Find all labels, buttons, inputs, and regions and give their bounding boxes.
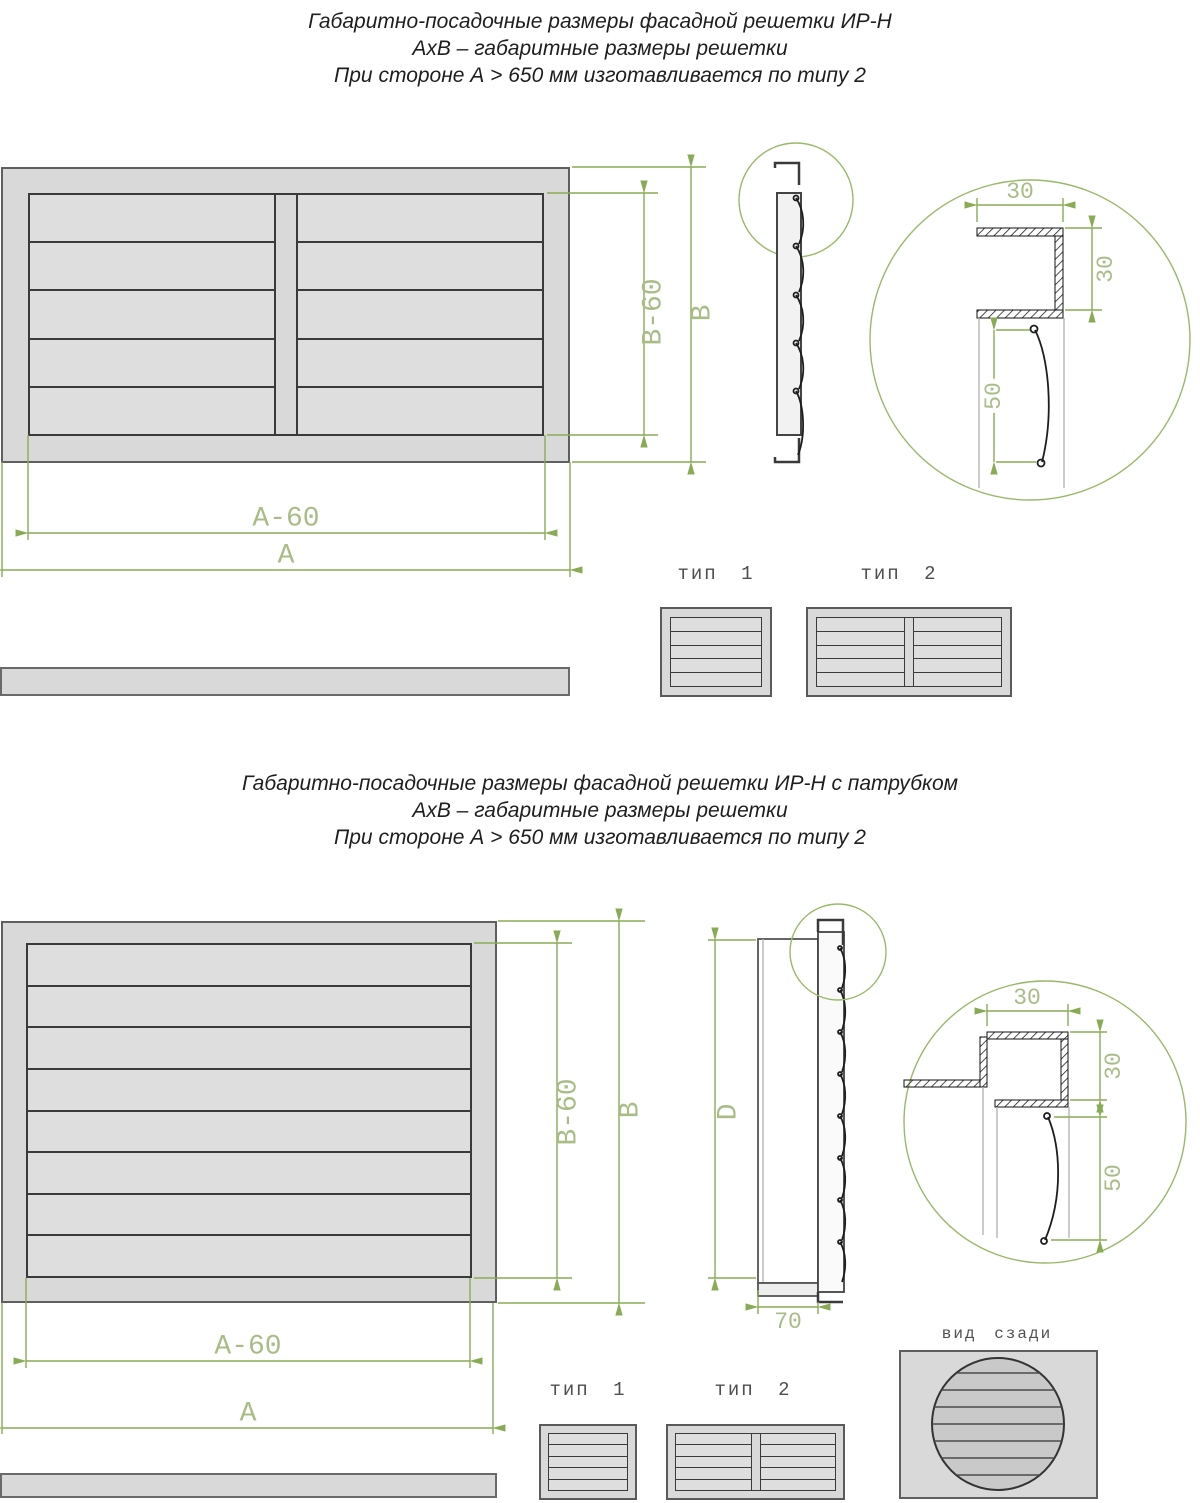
louver-slat [817,645,904,659]
louver-slat [671,658,761,672]
dim-label-b60: B-60 [639,278,670,345]
louver-slat [549,1456,627,1467]
louver-slat [817,672,904,686]
louver-slat [914,618,1001,631]
profile-flange-top [977,228,1063,236]
section2-detail-view [902,980,1192,1270]
rear-view-opening [901,1352,1096,1497]
section1-profile-strip [0,667,570,696]
dim-label-a60: A-60 [214,1332,281,1363]
detail-dim-height: 30 [1101,1052,1127,1080]
louver-slat [817,631,904,645]
louver-slat [676,1444,751,1455]
rear-view-label: вид сзади [942,1325,1052,1343]
louver-slat [549,1434,627,1444]
profile-flange-top [987,1032,1068,1039]
louver-slat [676,1479,751,1490]
profile-flange-bottom [977,310,1063,318]
detail-dim-height: 30 [1093,255,1119,283]
detail-dim-blade: 50 [981,379,1007,413]
center-divider [751,1434,761,1490]
type1-label: тип 1 [677,563,754,585]
section2-dimension-lines [0,915,720,1435]
rear-view-box [899,1350,1098,1499]
louver-slat [671,672,761,686]
detail-dim-width: 30 [1006,179,1034,205]
section2-title-line3: При стороне А > 650 мм изготавливается п… [0,824,1200,851]
louver-slat [671,631,761,645]
louver-slat [914,645,1001,659]
louver-slat [817,618,904,631]
detail-dim-blade: 50 [1101,1164,1127,1192]
dim-label-d: D [714,1104,745,1121]
type1-grille-thumbnail [660,607,772,697]
section2-profile-strip [0,1473,497,1498]
louver-slat [761,1434,836,1444]
section1-title-line2: АхВ – габаритные размеры решетки [0,35,1200,62]
dim-label-b: B [616,1102,647,1119]
louver-slat [761,1456,836,1467]
dim-label-a: A [278,541,295,572]
louver-slat [914,672,1001,686]
section1-side-view [730,140,870,480]
louver-slat [817,658,904,672]
louver-slat [549,1479,627,1490]
grille-profile [818,932,844,1292]
section1-title: Габаритно-посадочные размеры фасадной ре… [0,8,1200,89]
louver-slat [671,645,761,659]
type1-grille-thumbnail [539,1424,637,1500]
louver-slat [676,1456,751,1467]
section1-detail-view [862,172,1200,512]
louver-slat [761,1444,836,1455]
section1-dimension-lines [0,160,720,590]
center-divider [904,618,914,686]
dim-label-depth: 70 [774,1309,802,1335]
dim-label-b60: B-60 [554,1078,585,1145]
profile-flange-side [1055,236,1063,310]
louver-slat [914,631,1001,645]
profile-flange-bottom [995,1100,1068,1107]
louver-slat [914,658,1001,672]
louver-slat [761,1467,836,1478]
type2-label: тип 2 [714,1379,791,1401]
section1-title-line3: При стороне А > 650 мм изготавливается п… [0,62,1200,89]
louver-slat [671,618,761,631]
detail-dim-width: 30 [1013,985,1041,1011]
profile-step [980,1037,987,1087]
louver-slat [676,1467,751,1478]
section2-title: Габаритно-посадочные размеры фасадной ре… [0,770,1200,851]
type2-label: тип 2 [860,563,937,585]
louver-slat [676,1434,751,1444]
dim-label-a: A [240,1399,257,1430]
section2-title-line2: АхВ – габаритные размеры решетки [0,797,1200,824]
type1-label: тип 1 [549,1379,626,1401]
louver-slat [549,1467,627,1478]
duct-flange [758,1283,818,1296]
technical-drawing-canvas: Габаритно-посадочные размеры фасадной ре… [0,0,1200,1503]
type2-grille-thumbnail [806,607,1012,697]
type2-grille-thumbnail [666,1424,845,1500]
profile-flange-side [1061,1039,1068,1100]
louver-slat [761,1479,836,1490]
section1-title-line1: Габаритно-посадочные размеры фасадной ре… [0,8,1200,35]
dim-label-b: B [688,305,719,322]
dim-label-a60: A-60 [252,504,319,535]
section2-title-line1: Габаритно-посадочные размеры фасадной ре… [0,770,1200,797]
louver-slat [549,1444,627,1455]
duct-wall [904,1080,980,1087]
